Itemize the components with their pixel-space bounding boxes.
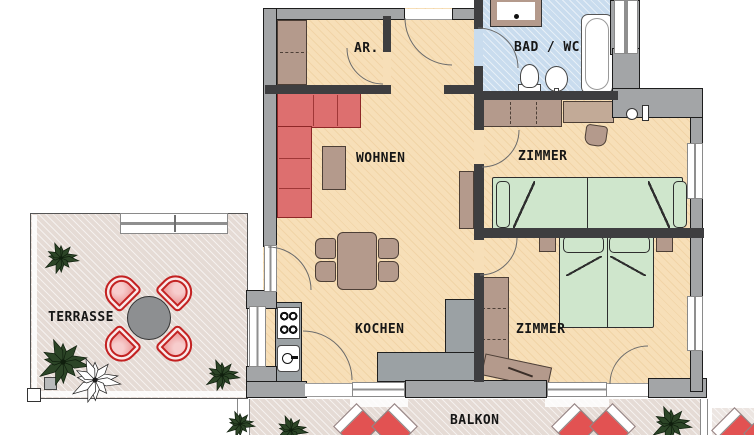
storage-closet — [277, 20, 307, 85]
room-label-terrasse: TERRASSE — [48, 310, 114, 325]
door-gap-bedroom1 — [474, 130, 484, 164]
coffee-table — [322, 146, 346, 190]
closet-divider — [280, 52, 304, 53]
room-label-zimmer-1: ZIMMER — [518, 149, 567, 164]
blanket-fold — [610, 256, 646, 276]
dining-chair — [378, 238, 399, 259]
terrace-table — [127, 296, 171, 340]
room-label-bad-wc: BAD / WC — [514, 40, 580, 55]
wardrobe-divider — [482, 339, 506, 340]
wardrobe-divider — [482, 308, 506, 309]
wall-storage-bottom — [265, 85, 391, 94]
bedroom1-window — [687, 143, 703, 199]
plant-icon — [274, 413, 308, 435]
wall-bottom-b — [405, 380, 547, 398]
bathroom-window — [614, 0, 638, 54]
bed-pillow — [673, 181, 687, 228]
blanket-fold — [648, 181, 670, 229]
door-gap-bedroom2 — [474, 240, 484, 273]
wall-bedroom-divider — [474, 228, 704, 238]
sofa-seam — [279, 158, 310, 159]
bed-pillow — [496, 181, 510, 228]
tv-sideboard — [459, 171, 474, 229]
sofa-side-section — [277, 126, 312, 218]
plant-icon — [225, 409, 255, 435]
wall-left — [263, 8, 277, 247]
window-mullion — [174, 215, 176, 232]
sofa-seam — [279, 188, 310, 189]
dining-chair — [378, 261, 399, 282]
room-label-wohnen: WOHNEN — [356, 151, 405, 166]
shower-icon — [491, 0, 541, 26]
nightstand — [656, 236, 673, 252]
room-label-balkon: BALKON — [450, 413, 499, 428]
bed-divider — [587, 178, 588, 232]
room-label-kochen: KOCHEN — [355, 322, 404, 337]
kitchen-balcony-door-threshold — [305, 383, 352, 397]
toilet-bowl — [520, 64, 539, 88]
wall-corridor-c — [474, 273, 484, 382]
room-label-zimmer-2: ZIMMER — [516, 322, 565, 337]
dining-chair — [315, 238, 336, 259]
balcony-window-1 — [352, 382, 405, 397]
wall-bath-bottom — [482, 91, 618, 100]
balcony-right-edge — [700, 399, 708, 435]
kitchen-counter-bottom — [377, 352, 477, 382]
radiator-icon — [626, 108, 638, 120]
sofa-seam — [313, 95, 314, 126]
balcony-window-2 — [547, 382, 607, 397]
floor-plan: TERRASSE WOHNEN AR. BAD / WC ZIMMER ZIMM… — [0, 0, 754, 435]
bedroom1-desk — [563, 101, 614, 123]
blanket-fold — [513, 181, 535, 229]
nightstand — [539, 236, 556, 252]
bedroom1-wardrobe — [483, 99, 562, 127]
bedroom2-balcony-door-threshold — [607, 383, 648, 397]
shower-drain — [514, 14, 519, 19]
terrace-window — [120, 213, 228, 234]
wall-corridor-a — [474, 94, 484, 130]
door-gap-storage — [383, 52, 391, 85]
plant-icon — [43, 240, 79, 280]
terrace-door-glass — [264, 245, 277, 292]
door-gap-entrance — [405, 9, 452, 20]
bed-pillow — [609, 236, 650, 253]
wall-storage-right — [383, 16, 391, 52]
kitchen-window — [249, 306, 266, 367]
wardrobe-divider — [510, 102, 511, 124]
bed-pillow — [563, 236, 604, 253]
wardrobe-divider — [536, 102, 537, 124]
door-gap-bath — [474, 29, 483, 66]
pen — [508, 367, 533, 378]
room-label-ar: AR. — [354, 41, 379, 56]
plant-icon — [69, 354, 121, 410]
stove-icon — [277, 307, 300, 339]
wall-bottom-a — [246, 381, 307, 398]
plant-icon — [204, 357, 240, 397]
bathtub-icon — [581, 14, 613, 94]
plant-icon — [650, 403, 692, 435]
sofa-top-section — [277, 93, 361, 128]
bedroom2-window — [687, 296, 703, 351]
blanket-fold — [566, 256, 602, 276]
wall-hall-stub — [444, 85, 483, 94]
radiator-valve — [642, 105, 649, 121]
sofa-seam — [337, 95, 338, 126]
dining-table — [337, 232, 377, 290]
wall-hall-bath-upper — [474, 0, 483, 29]
kitchen-sink-icon — [277, 345, 300, 372]
dining-chair — [315, 261, 336, 282]
sink-tap — [291, 356, 298, 359]
bathtub-basin — [585, 18, 609, 90]
